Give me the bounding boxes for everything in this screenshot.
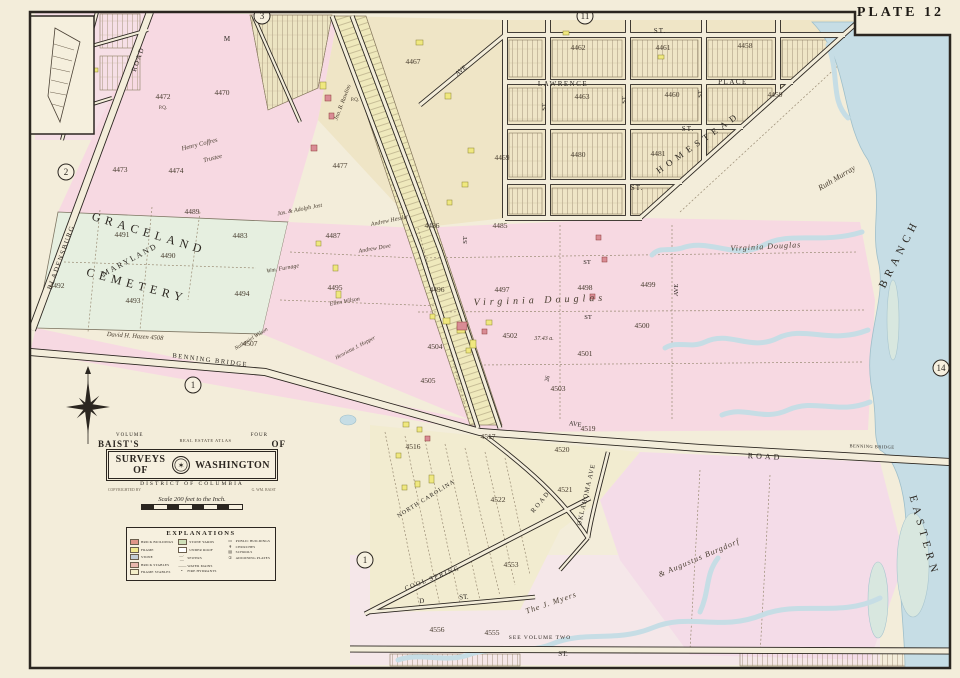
map-label-parcel-4497-80: 4497 bbox=[495, 285, 510, 294]
map-label-parcel-4498-81: 4498 bbox=[578, 283, 593, 292]
map-label-parcel-4463-64: 4463 bbox=[575, 92, 590, 101]
scale-bar bbox=[141, 504, 243, 510]
frame-building bbox=[333, 265, 338, 271]
inset-plat bbox=[28, 16, 94, 134]
map-label-parcel-4494-77: 4494 bbox=[235, 289, 250, 298]
legend-label: FRAME bbox=[141, 548, 154, 552]
frame-building bbox=[563, 31, 569, 35]
map-label-parcel-4462-61: 4462 bbox=[571, 43, 586, 52]
map-label-37-43-a--51: 37.43 a. bbox=[533, 335, 554, 342]
plate-ref-number-1: 1 bbox=[363, 555, 368, 565]
map-label-parcel-4492-69: 4492 bbox=[50, 281, 65, 290]
atlas-map-plate: BLADENSBURGROADMST.LAWRENCEPLACEST.ST.ST… bbox=[0, 0, 960, 678]
map-label-parcel-4519-91: 4519 bbox=[581, 424, 596, 433]
ribbon-washington: WASHINGTON bbox=[195, 460, 270, 471]
publisher-seal-icon: ✶ bbox=[172, 456, 190, 474]
map-label-parcel-4517-90: 4517 bbox=[481, 432, 496, 441]
legend-label: ADJOINING PLATES bbox=[236, 556, 270, 560]
city-block bbox=[552, 188, 622, 214]
legend-label: SCHOOLS bbox=[236, 550, 253, 554]
map-label-see-volume-two-32: SEE VOLUME TWO bbox=[509, 635, 571, 641]
legend-symbol-icon: • bbox=[178, 569, 185, 573]
legend-entry: ▭PUBLIC BUILDINGS bbox=[227, 539, 272, 543]
map-label-parcel-4493-70: 4493 bbox=[126, 296, 141, 305]
map-label-ave-20: AVE bbox=[673, 284, 680, 297]
legend-entry: BRICK STABLES bbox=[130, 562, 175, 568]
frame-building bbox=[466, 348, 471, 353]
frame-building bbox=[462, 182, 468, 187]
map-label-lawrence-4: LAWRENCE bbox=[538, 80, 588, 88]
legend-entry: ——WATER MAINS bbox=[178, 564, 223, 568]
map-label-st--3: ST. bbox=[654, 27, 666, 35]
title-cartouche: VOLUME FOUR BAIST'S REAL ESTATE ATLAS OF… bbox=[98, 433, 286, 510]
legend-entry: BRICK BUILDINGS bbox=[130, 539, 175, 545]
map-label-st-10: ST bbox=[697, 90, 704, 98]
scale-text: Scale 200 feet to the Inch. bbox=[98, 496, 286, 503]
frame-building bbox=[417, 427, 422, 432]
cartouche-of: OF bbox=[271, 439, 286, 449]
frame-building bbox=[415, 481, 420, 487]
legend-symbol-icon: ▭ bbox=[227, 539, 234, 543]
brick-building bbox=[311, 145, 317, 151]
brick-building bbox=[325, 95, 331, 101]
frame-building bbox=[470, 340, 476, 348]
brick-building bbox=[457, 322, 467, 330]
legend-entry: —·—SEWERS bbox=[178, 554, 223, 562]
legend-label: FRAME STABLES bbox=[141, 570, 171, 574]
frame-building bbox=[658, 55, 664, 59]
legend-entry: •FIRE HYDRANTS bbox=[178, 569, 223, 573]
legend-symbol-icon: ✝ bbox=[227, 545, 234, 549]
map-label-st-23: ST bbox=[584, 314, 592, 321]
cartouche-arc-title: REAL ESTATE ATLAS bbox=[180, 438, 232, 443]
legend-entry: STONE bbox=[130, 554, 175, 560]
map-label-parcel-4460-65: 4460 bbox=[665, 90, 680, 99]
legend-label: FIRE HYDRANTS bbox=[187, 569, 216, 573]
map-label-m-2: M bbox=[224, 35, 231, 43]
map-label-parcel-4470-53: 4470 bbox=[215, 88, 230, 97]
frame-building bbox=[447, 200, 452, 205]
map-label-place-5: PLACE bbox=[718, 78, 748, 86]
map-label-parcel-4486-74: 4486 bbox=[425, 221, 440, 230]
map-label-parcel-4477-57: 4477 bbox=[333, 161, 348, 170]
legend-label: SEWERS bbox=[187, 556, 202, 560]
map-label-parcel-4491-67: 4491 bbox=[115, 230, 130, 239]
frame-building bbox=[336, 291, 341, 298]
map-label-parcel-p-q--99: P.Q. bbox=[351, 98, 359, 103]
plate-ref-number-1: 1 bbox=[191, 380, 196, 390]
ribbon-surveys-of: SURVEYS OF bbox=[114, 454, 167, 476]
legend-label: STONE YARDS bbox=[189, 540, 214, 544]
map-label-road-17: ROAD bbox=[748, 451, 783, 462]
legend-entry: STONE YARDS bbox=[178, 539, 223, 545]
map-label-26-24: 26 bbox=[544, 375, 551, 382]
frame-building bbox=[443, 318, 450, 324]
city-block bbox=[552, 133, 622, 177]
title-ribbon: SURVEYS OF ✶ WASHINGTON bbox=[108, 451, 276, 479]
map-label-parcel-4504-84: 4504 bbox=[428, 342, 443, 351]
map-label-parcel-4469-58: 4469 bbox=[495, 153, 510, 162]
plate-ref-number-2: 2 bbox=[64, 167, 69, 177]
legend-entry: FRAME bbox=[130, 547, 175, 553]
city-block bbox=[552, 40, 622, 77]
map-label-st-22: ST bbox=[583, 259, 591, 266]
legend-swatch-icon bbox=[130, 562, 139, 568]
map-label-parcel-4507-78: 4507 bbox=[243, 339, 258, 348]
map-label-parcel-4490-68: 4490 bbox=[161, 251, 176, 260]
legend-label: CHURCHES bbox=[236, 545, 256, 549]
legend-column-3: ▭PUBLIC BUILDINGS✝CHURCHES▤SCHOOLS①ADJOI… bbox=[227, 539, 272, 577]
city-block bbox=[509, 88, 542, 121]
legend-entry: FRAME STABLES bbox=[130, 569, 175, 575]
map-label-parcel-4500-86: 4500 bbox=[635, 321, 650, 330]
legend-swatch-icon bbox=[130, 547, 139, 553]
map-label-parcel-4505-87: 4505 bbox=[421, 376, 436, 385]
frame-building bbox=[316, 241, 321, 246]
frame-building bbox=[429, 475, 434, 483]
map-label-st--6: ST. bbox=[682, 125, 694, 133]
map-label-parcel-4503-88: 4503 bbox=[551, 384, 566, 393]
map-label-parcel-4521-93: 4521 bbox=[558, 485, 573, 494]
map-label-st--31: ST. bbox=[558, 650, 568, 658]
legend-symbol-icon: ▤ bbox=[227, 550, 234, 554]
cartouche-volume: VOLUME bbox=[116, 433, 143, 438]
map-label-d-29: D bbox=[419, 597, 425, 605]
cartouche-four: FOUR bbox=[251, 433, 268, 438]
map-label-parcel-p-q--98: P.Q. bbox=[159, 106, 167, 111]
explanations-legend: EXPLANATIONS BRICK BUILDINGSFRAMESTONEBR… bbox=[126, 527, 276, 581]
map-label-parcel-4473-54: 4473 bbox=[113, 165, 128, 174]
legend-entry: ▤SCHOOLS bbox=[227, 550, 272, 554]
map-label-parcel-4553-95: 4553 bbox=[504, 560, 519, 569]
legend-swatch-icon bbox=[178, 539, 187, 545]
cartouche-copyright: COPYRIGHTED BY bbox=[108, 488, 141, 492]
map-label-parcel-4522-94: 4522 bbox=[491, 495, 506, 504]
legend-label: BRICK BUILDINGS bbox=[141, 540, 173, 544]
map-label-parcel-4495-76: 4495 bbox=[328, 283, 343, 292]
legend-label: WATER MAINS bbox=[187, 564, 212, 568]
legend-entry: ✝CHURCHES bbox=[227, 545, 272, 549]
map-label-parcel-4480-59: 4480 bbox=[571, 150, 586, 159]
legend-label: PUBLIC BUILDINGS bbox=[236, 539, 270, 543]
map-label-parcel-4516-89: 4516 bbox=[406, 442, 421, 451]
map-label-parcel-4472-52: 4472 bbox=[156, 92, 171, 101]
cartouche-district: DISTRICT OF COLUMBIA bbox=[98, 481, 286, 487]
frame-building bbox=[396, 453, 401, 458]
plate-ref-number-14: 14 bbox=[937, 363, 947, 373]
map-label-parcel-4489-71: 4489 bbox=[185, 207, 200, 216]
frame-building bbox=[430, 314, 435, 319]
legend-entry: UNDER ROOF bbox=[178, 547, 223, 553]
brick-building bbox=[602, 257, 607, 262]
city-block bbox=[509, 133, 542, 177]
legend-label: BRICK STABLES bbox=[141, 563, 169, 567]
plate-number: PLATE 12 bbox=[857, 5, 944, 21]
map-label-parcel-4481-60: 4481 bbox=[651, 149, 666, 158]
city-block bbox=[509, 188, 542, 214]
cartouche-baists: BAIST'S bbox=[98, 439, 140, 449]
map-label-parcel-4458-63: 4458 bbox=[738, 41, 753, 50]
legend-symbol-icon: —·— bbox=[178, 554, 185, 562]
map-label-parcel-4496-79: 4496 bbox=[430, 285, 445, 294]
frame-building bbox=[403, 422, 409, 427]
map-label-st-9: ST bbox=[621, 96, 628, 104]
pond bbox=[340, 415, 356, 425]
brick-building bbox=[482, 329, 487, 334]
map-label-st--30: ST. bbox=[459, 593, 469, 602]
legend-column-2: STONE YARDSUNDER ROOF—·—SEWERS——WATER MA… bbox=[178, 539, 223, 577]
frame-building bbox=[468, 148, 474, 153]
legend-swatch-icon bbox=[130, 554, 139, 560]
frame-building bbox=[445, 93, 451, 99]
frame-building bbox=[402, 485, 407, 490]
map-label-st-8: ST bbox=[541, 103, 548, 111]
legend-symbol-icon: —— bbox=[178, 564, 185, 568]
map-label-parcel-4555-97: 4555 bbox=[485, 628, 500, 637]
map-label-parcel-4520-92: 4520 bbox=[555, 445, 570, 454]
legend-title: EXPLANATIONS bbox=[130, 530, 272, 537]
brick-building bbox=[425, 436, 430, 441]
map-label-parcel-4467-56: 4467 bbox=[406, 57, 421, 66]
legend-label: UNDER ROOF bbox=[189, 548, 213, 552]
legend-entry: ①ADJOINING PLATES bbox=[227, 556, 272, 560]
map-label-parcel-4556-96: 4556 bbox=[430, 625, 445, 634]
map-label-parcel-4499-82: 4499 bbox=[641, 280, 656, 289]
legend-symbol-icon: ① bbox=[227, 556, 234, 560]
map-label-parcel-4501-85: 4501 bbox=[578, 349, 593, 358]
map-label-parcel-4485-75: 4485 bbox=[493, 221, 508, 230]
map-label-parcel-4474-55: 4474 bbox=[169, 166, 184, 175]
map-label-parcel-4483-72: 4483 bbox=[233, 231, 248, 240]
city-block bbox=[509, 40, 542, 77]
legend-swatch-icon bbox=[178, 547, 187, 553]
legend-column-1: BRICK BUILDINGSFRAMESTONEBRICK STABLESFR… bbox=[130, 539, 175, 577]
frame-building bbox=[320, 82, 326, 89]
map-label-parcel-4487-73: 4487 bbox=[326, 231, 341, 240]
map-label-parcel-4502-83: 4502 bbox=[503, 331, 518, 340]
map-label-st-11: ST bbox=[462, 236, 469, 244]
map-label-parcel-4459-66: 4459 bbox=[768, 90, 783, 99]
frame-building bbox=[416, 40, 423, 45]
legend-swatch-icon bbox=[130, 539, 139, 545]
cartouche-publisher: G. WM. BAIST bbox=[252, 488, 276, 492]
map-label-parcel-4461-62: 4461 bbox=[656, 43, 671, 52]
road-surface-22 bbox=[350, 649, 950, 651]
map-label-st--7: ST. bbox=[631, 184, 643, 192]
brick-building bbox=[596, 235, 601, 240]
legend-swatch-icon bbox=[130, 569, 139, 575]
frame-building bbox=[486, 320, 492, 325]
legend-label: STONE bbox=[141, 555, 153, 559]
